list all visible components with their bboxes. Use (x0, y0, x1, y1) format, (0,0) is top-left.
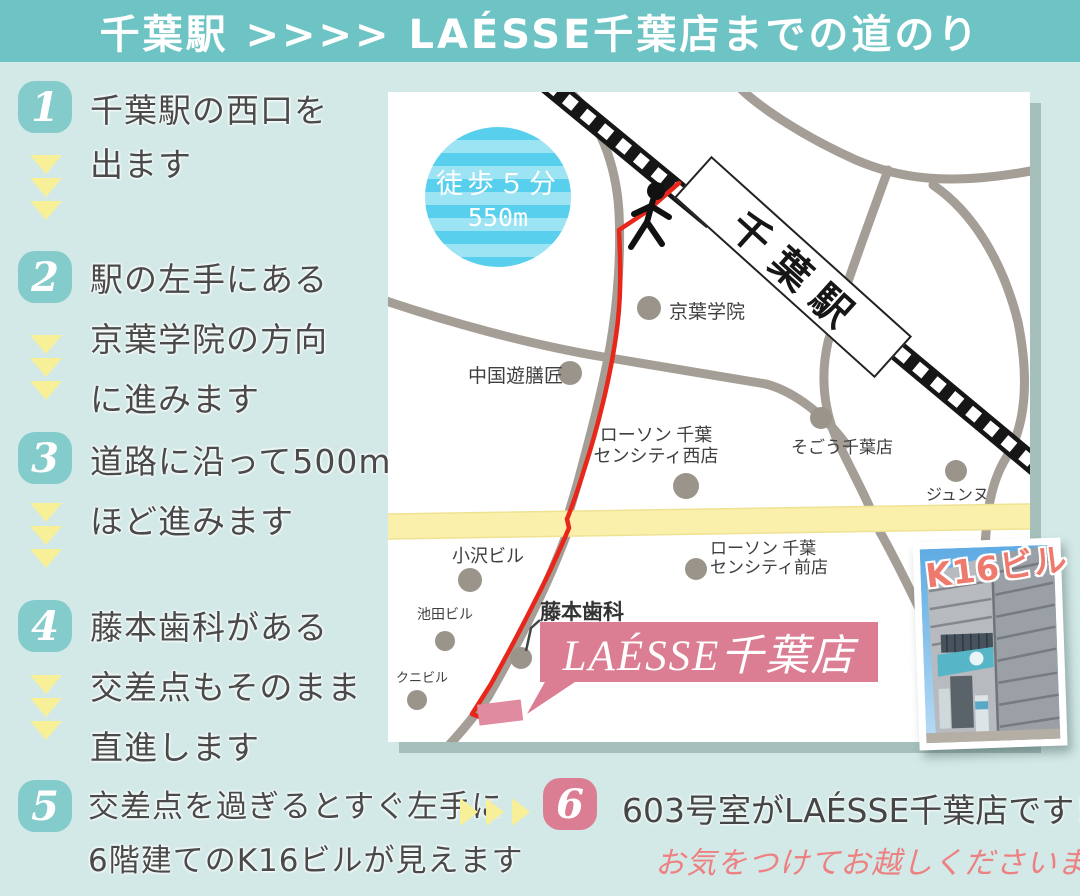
triangle-down-icon (30, 335, 62, 354)
triangle-down-icon (30, 178, 62, 197)
triangle-down-icon (30, 201, 62, 220)
landmark-dot-icon (458, 568, 482, 592)
step-4-number: 4 (31, 603, 59, 650)
step-2-badge: 2 (18, 251, 72, 303)
landmark-dot-icon (685, 558, 707, 580)
step-6-badge: 6 (543, 778, 597, 830)
landmark-label-keiyo-gakuin: 京葉学院 (669, 297, 745, 324)
triangle-down-icon (30, 155, 62, 174)
landmark-dot-icon (510, 647, 532, 669)
triangle-down-icon (30, 698, 62, 717)
triangle-right-icon (486, 798, 504, 826)
step-4-badge: 4 (18, 600, 72, 652)
landmark-dot-icon (435, 631, 455, 651)
triangle-down-icon (30, 358, 62, 377)
page-title: 千葉駅 >>>> LAÉSSE千葉店までの道のり (100, 2, 981, 60)
landmark-label-ikeda: 池田ビル (417, 604, 473, 624)
access-map-poster: 千葉駅 >>>> LAÉSSE千葉店までの道のり 1 千葉駅の西口を 出ます 2… (0, 0, 1080, 896)
landmark-label-junnu: ジュンヌ (926, 481, 989, 505)
step-6-text: 603号室がLAÉSSE千葉店です！ (622, 784, 1080, 832)
step-5-number: 5 (31, 783, 59, 830)
step-5-line-2: 6階建てのK16ビルが見えます (88, 834, 524, 888)
walk-time-badge: 徒歩５分 550m (425, 127, 571, 267)
triangle-down-icon (30, 526, 62, 545)
step-5-badge: 5 (18, 780, 72, 832)
step-2-line-3: に進みます (90, 370, 328, 430)
landmark-label-chugoku: 中国遊膳匠 (468, 361, 563, 388)
step-1-badge: 1 (18, 81, 72, 133)
landmark-dot-icon (673, 473, 699, 499)
step-2-number: 2 (31, 254, 59, 301)
step-2-line-1: 駅の左手にある (90, 250, 328, 310)
step-5-text: 交差点を過ぎるとすぐ左手に 6階建てのK16ビルが見えます (88, 780, 524, 888)
triangle-down-icon (30, 675, 62, 694)
triangle-right-icon (512, 798, 530, 826)
destination-name: LAÉSSE千葉店 (563, 621, 856, 683)
triangle-down-icon (30, 549, 62, 568)
step-1-line-2: 出ます (90, 138, 328, 192)
landmark-dot-icon (945, 460, 967, 482)
triangle-down-icon (30, 721, 62, 740)
destination-name-box: LAÉSSE千葉店 (540, 622, 878, 682)
triangle-down-icon (30, 503, 62, 522)
step-4-text: 藤本歯科がある 交差点もそのまま 直進します (90, 598, 361, 778)
walk-distance: 550m (468, 203, 528, 232)
step-4-line-1: 藤本歯科がある (90, 598, 361, 658)
step-1-number: 1 (31, 84, 59, 131)
step-3-badge: 3 (18, 432, 72, 484)
step-3-text: 道路に沿って500m ほど進みます (90, 432, 391, 552)
step-1-text: 千葉駅の西口を 出ます (90, 84, 328, 192)
step-4-line-2: 交差点もそのまま (90, 658, 361, 718)
destination-box-tail (527, 680, 578, 714)
step-3-line-1: 道路に沿って500m (90, 432, 391, 492)
step-2-line-2: 京葉学院の方向 (90, 310, 328, 370)
landmark-label-sogo: そごう千葉店 (791, 433, 893, 458)
landmark-label-kuni: クニビル (396, 667, 448, 686)
step-6-number: 6 (556, 781, 584, 828)
landmark-dot-icon (407, 690, 427, 710)
landmark-dot-icon (637, 296, 661, 320)
caution-note: お気をつけてお越しくださいませ (655, 838, 1080, 882)
triangle-right-icon (460, 798, 478, 826)
step-1-line-1: 千葉駅の西口を (90, 84, 328, 138)
triangle-down-icon (30, 381, 62, 400)
step-5-line-1: 交差点を過ぎるとすぐ左手に (88, 780, 524, 834)
landmark-label-lawson-west: ローソン 千葉 センシティ西店 (586, 425, 726, 467)
step-2-text: 駅の左手にある 京葉学院の方向 に進みます (90, 250, 328, 430)
step-3-number: 3 (31, 435, 59, 482)
main-street (388, 504, 1030, 539)
landmark-label-ozawa: 小沢ビル (452, 542, 524, 568)
road-north-curve (740, 92, 1030, 179)
step-3-line-2: ほど進みます (90, 492, 391, 552)
walking-person-icon (631, 182, 669, 247)
landmark-label-lawson-front: ローソン 千葉 センシティ前店 (710, 539, 828, 577)
landmark-dot-icon (810, 407, 832, 429)
header-bar: 千葉駅 >>>> LAÉSSE千葉店までの道のり (0, 0, 1080, 62)
walk-time: 徒歩５分 (436, 162, 560, 201)
step-4-line-3: 直進します (90, 718, 361, 778)
